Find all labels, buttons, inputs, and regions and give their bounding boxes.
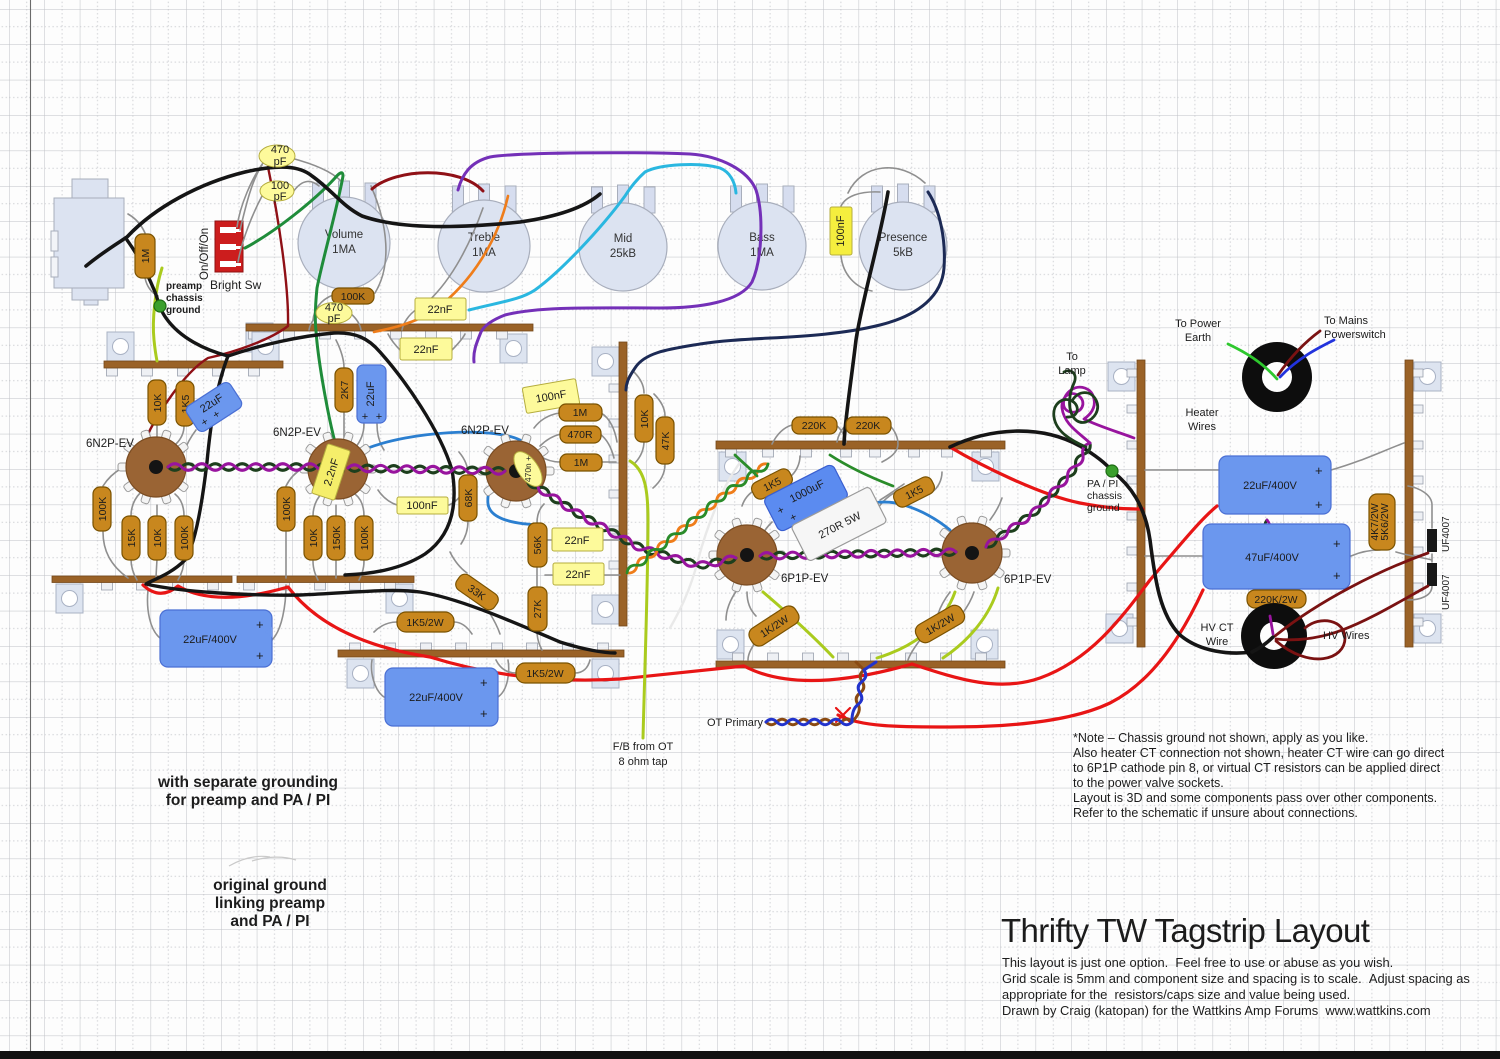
svg-text:Bright Sw: Bright Sw [210,278,262,292]
svg-text:ground: ground [166,305,200,316]
svg-text:Also heater CT connection not: Also heater CT connection not shown, hea… [1073,746,1445,760]
svg-text:PA / PI: PA / PI [1087,478,1118,490]
svg-text:22nF: 22nF [427,304,452,316]
svg-text:10K: 10K [152,529,164,548]
svg-text:pF: pF [274,156,287,168]
svg-text:Layout is 3D and some componen: Layout is 3D and some components pass ov… [1073,791,1437,805]
svg-text:68K: 68K [463,489,475,508]
svg-text:470: 470 [271,144,289,156]
svg-text:470R: 470R [567,429,593,441]
svg-text:6P1P-EV: 6P1P-EV [781,573,829,585]
svg-text:5K6/2W: 5K6/2W [1379,503,1391,540]
svg-text:22nF: 22nF [565,569,590,581]
svg-text:8 ohm tap: 8 ohm tap [619,756,668,768]
svg-text:to the power valve sockets.: to the power valve sockets. [1073,776,1224,790]
svg-text:+: + [480,675,488,690]
svg-text:220K: 220K [856,420,881,432]
svg-text:+: + [1315,463,1323,478]
svg-text:Refer to the schematic if unsu: Refer to the schematic if unsure about c… [1073,806,1358,820]
svg-text:chassis: chassis [1087,490,1122,502]
svg-text:22nF: 22nF [413,344,438,356]
svg-text:100nF: 100nF [835,215,847,246]
svg-text:Wire: Wire [1206,636,1229,648]
svg-text:100nF: 100nF [406,500,437,512]
svg-text:On/Off/On: On/Off/On [199,228,211,280]
svg-text:10K: 10K [639,410,651,429]
svg-text:100K: 100K [179,526,191,551]
svg-text:to 6P1P cathode pin 8, or virt: to 6P1P cathode pin 8, or virtual CT res… [1073,761,1441,775]
svg-text:1K5/2W: 1K5/2W [526,668,563,680]
svg-text:chassis: chassis [166,293,203,304]
svg-text:10K: 10K [308,529,320,548]
svg-text:Powerswitch: Powerswitch [1324,329,1386,341]
svg-text:*Note – Chassis ground not sho: *Note – Chassis ground not shown, apply … [1073,731,1368,745]
svg-text:HV CT: HV CT [1201,622,1234,634]
svg-text:100K: 100K [359,526,371,551]
svg-text:6P1P-EV: 6P1P-EV [1004,574,1052,586]
svg-text:This layout is just one option: This layout is just one option. Feel fre… [1002,955,1393,970]
svg-text:22uF/400V: 22uF/400V [1243,480,1297,492]
svg-text:original ground: original ground [213,877,327,894]
svg-text:1M: 1M [573,407,588,419]
svg-text:47uF/400V: 47uF/400V [1245,552,1299,564]
svg-text:To: To [1066,351,1078,363]
svg-text:UF4007: UF4007 [1441,516,1452,552]
svg-text:Thrifty TW Tagstrip Layout: Thrifty TW Tagstrip Layout [1001,912,1370,949]
svg-text:1MA: 1MA [750,247,774,259]
svg-text:and PA / PI: and PA / PI [230,913,309,930]
svg-text:+: + [480,706,488,721]
svg-text:appropriate for the resistors: appropriate for the resistors/caps size … [1002,987,1350,1002]
svg-text:Lamp: Lamp [1058,365,1086,377]
svg-text:470n +: 470n + [523,456,533,482]
svg-text:+: + [376,411,382,423]
svg-text:25kB: 25kB [610,248,637,260]
svg-text:pF: pF [274,191,287,203]
svg-text:100K: 100K [97,497,109,522]
svg-text:Presence: Presence [879,232,928,244]
svg-text:22uF/400V: 22uF/400V [409,692,463,704]
svg-text:+: + [256,617,264,632]
svg-text:linking preamp: linking preamp [215,895,325,912]
svg-text:ground: ground [1087,502,1120,514]
svg-text:22uF/400V: 22uF/400V [183,634,237,646]
svg-text:+: + [1333,568,1341,583]
svg-text:Mid: Mid [614,233,633,245]
svg-text:1K5/2W: 1K5/2W [406,617,443,629]
svg-text:1M: 1M [574,457,589,469]
svg-text:220K: 220K [802,420,827,432]
svg-text:preamp: preamp [166,281,202,292]
svg-text:Earth: Earth [1185,332,1211,344]
svg-text:+: + [1315,497,1323,512]
svg-text:Grid scale is 5mm and componen: Grid scale is 5mm and component size and… [1002,971,1470,986]
svg-text:2K7: 2K7 [339,381,351,400]
svg-text:HV Wires: HV Wires [1323,630,1370,642]
svg-text:100K: 100K [341,291,366,303]
svg-text:6N2P-EV: 6N2P-EV [86,438,134,450]
svg-text:10K: 10K [152,394,164,413]
svg-text:+: + [362,411,368,423]
svg-text:Heater: Heater [1185,407,1218,419]
svg-text:47K: 47K [660,432,672,451]
svg-text:27K: 27K [532,600,544,619]
svg-text:150K: 150K [331,526,343,551]
svg-text:15K: 15K [126,529,138,548]
svg-text:5kB: 5kB [893,247,913,259]
svg-text:Drawn by Craig (katopan) for t: Drawn by Craig (katopan) for the Wattkin… [1002,1003,1431,1018]
svg-text:6N2P-EV: 6N2P-EV [461,425,509,437]
svg-text:1M: 1M [140,249,152,264]
svg-text:Wires: Wires [1188,421,1217,433]
svg-text:22nF: 22nF [564,535,589,547]
svg-text:100K: 100K [281,497,293,522]
svg-text:To Mains: To Mains [1324,315,1369,327]
svg-text:F/B from OT: F/B from OT [613,741,674,753]
svg-text:pF: pF [328,313,341,325]
svg-text:22uF: 22uF [365,381,377,406]
svg-text:6N2P-EV: 6N2P-EV [273,427,321,439]
svg-text:UF4007: UF4007 [1441,574,1452,610]
svg-text:+: + [1333,536,1341,551]
svg-text:with separate grounding: with separate grounding [157,774,338,791]
svg-text:56K: 56K [532,536,544,555]
svg-text:1MA: 1MA [332,244,356,256]
svg-text:To Power: To Power [1175,318,1221,330]
svg-text:OT Primary: OT Primary [707,717,764,729]
svg-text:+: + [256,648,264,663]
svg-text:for preamp and PA / PI: for preamp and PA / PI [166,792,331,809]
